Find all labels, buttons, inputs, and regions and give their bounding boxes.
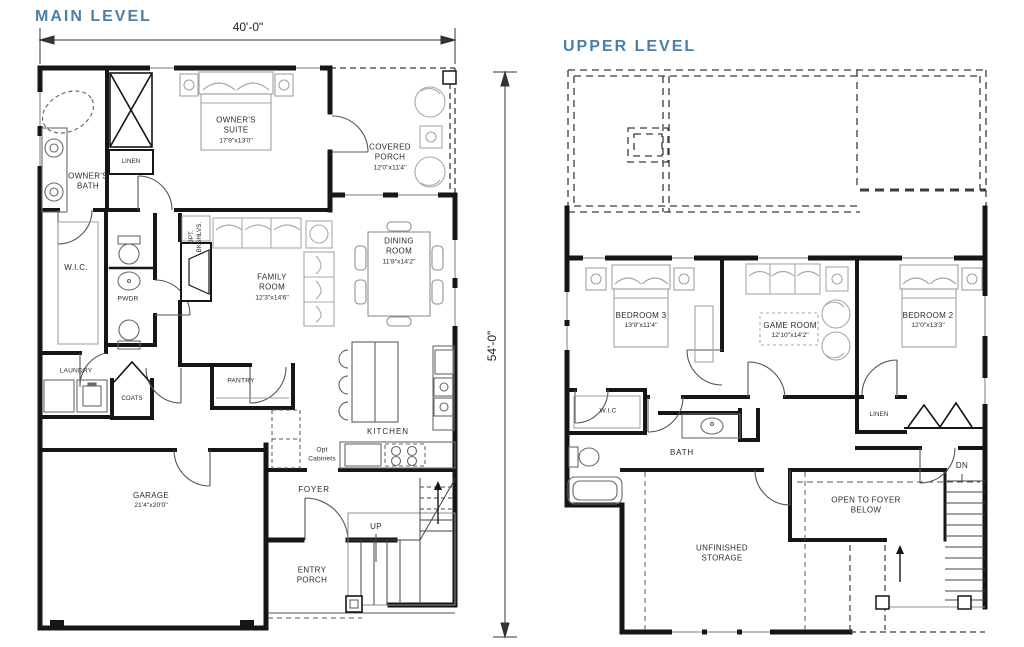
label-opt-bookshelves: OPT. BKSHLVS.	[188, 215, 204, 259]
opt-cabinets-dashed	[272, 410, 300, 468]
height-dimension-label: 54'-0"	[485, 331, 499, 362]
vanity-double-sink-icon	[42, 128, 67, 212]
room-label-garage: GARAGE 21'4"x20'0"	[111, 491, 191, 511]
room-label-dining-room: DINING ROOM 11'8"x14'2"	[375, 237, 423, 268]
room-label-pantry: PANTRY	[227, 378, 254, 387]
room-label-bath-upper: BATH	[670, 448, 694, 458]
room-label-coats: COATS	[121, 395, 142, 403]
room-label-wic-main: W.I.C.	[64, 263, 88, 273]
room-label-unfinished-storage: UNFINISHED STORAGE	[684, 544, 760, 565]
room-label-laundry: LAUNDRY	[60, 368, 93, 377]
room-label-bedroom2: BEDROOM 2 12'0"x13'3"	[901, 311, 955, 331]
room-label-entry-porch: ENTRY PORCH	[289, 566, 335, 587]
room-label-owners-suite: OWNER'S SUITE 17'9"x13'0"	[205, 116, 267, 147]
porch-roof-dashed	[330, 68, 455, 195]
room-label-bedroom3: BEDROOM 3 13'9"x11'4"	[614, 311, 668, 331]
upper-level-title: UPPER LEVEL	[563, 38, 696, 56]
kitchen-island-icon	[339, 342, 398, 422]
label-stairs-up: UP	[370, 522, 382, 532]
room-label-family-room: FAMILY ROOM 12'3"x14'6"	[243, 273, 301, 304]
room-label-linen-main: LINEN	[122, 158, 141, 166]
width-dimension-label: 40'-0"	[233, 20, 264, 34]
bathtub-icon	[35, 83, 101, 142]
floorplan-page: MAIN LEVEL UPPER LEVEL 40'-0" 54'-0" OWN…	[0, 0, 1024, 647]
room-label-kitchen: KITCHEN	[367, 427, 409, 437]
label-opt-cabinets: Opt Cabinets	[302, 446, 342, 463]
closet-bifold-bedroom2	[908, 403, 972, 427]
room-label-wic-upper: W.I.C	[599, 408, 616, 417]
coats-bifold-door	[114, 362, 150, 382]
interior-walls-upper	[567, 258, 985, 540]
washer-dryer-icon	[44, 380, 107, 412]
room-label-open-to-foyer: OPEN TO FOYER BELOW	[816, 496, 916, 517]
exterior-walls-upper	[567, 208, 985, 632]
wic-shelves	[58, 222, 98, 344]
room-label-covered-porch: COVERED PORCH 12'0"x11'4"	[359, 143, 421, 174]
room-label-game-room: GAME ROOM 12'10"x14'2"	[745, 321, 835, 341]
bed-icon-bedroom2	[900, 265, 982, 347]
room-label-owners-bath: OWNER'S BATH	[62, 172, 114, 193]
powder-sink-icon	[118, 272, 140, 290]
bed-icon-bedroom3	[586, 265, 694, 347]
room-label-linen-upper: LINEN	[870, 411, 889, 419]
room-label-pwdr: PWDR	[118, 296, 139, 305]
sofa-icon-gameroom	[746, 264, 850, 360]
room-label-foyer: FOYER	[298, 485, 330, 495]
toilet-icon	[118, 236, 140, 264]
floorplan-drawing	[0, 0, 1024, 647]
dresser-bedroom3	[695, 306, 713, 362]
upper-level-plan	[563, 70, 989, 636]
label-stairs-down: DN	[956, 461, 968, 471]
porch-post	[443, 71, 456, 84]
shower-icon	[110, 73, 152, 147]
stairs-down-icon	[876, 474, 985, 609]
main-level-title: MAIN LEVEL	[35, 8, 152, 26]
